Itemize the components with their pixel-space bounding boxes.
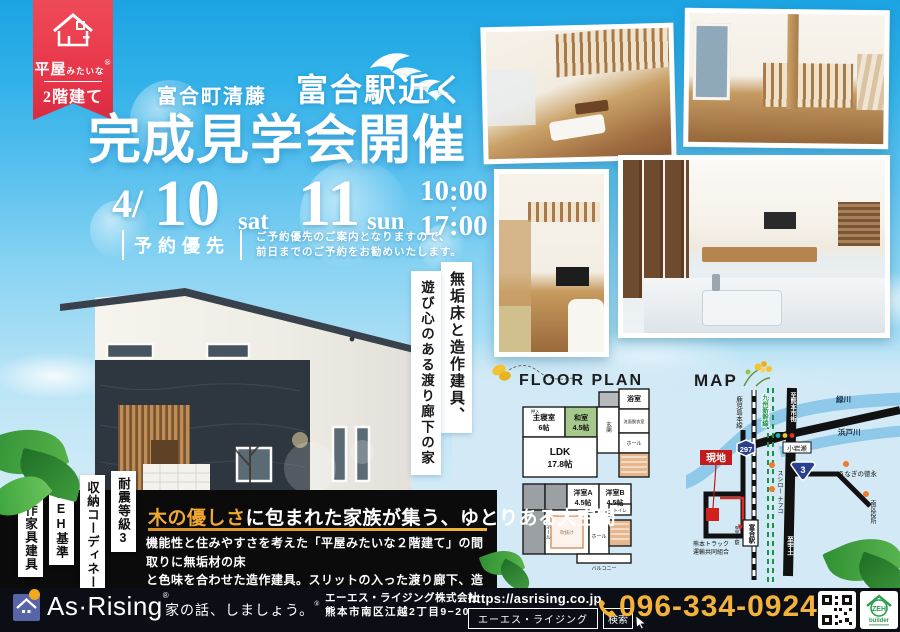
svg-text:バルコニー: バルコニー xyxy=(592,566,617,572)
logo-sun-icon xyxy=(29,589,40,600)
svg-text:南区役所: 南区役所 xyxy=(869,499,876,525)
brand-tagline: 家の話、しましょう。® xyxy=(165,600,321,620)
svg-text:ホール: ホール xyxy=(626,441,641,447)
svg-text:和室: 和室 xyxy=(573,413,588,422)
svg-text:緑川: 緑川 xyxy=(836,394,851,404)
interior-photo-loft-view xyxy=(480,23,676,165)
access-map: 現地 297 3 富合駅 緑川 浜戸川 小岩瀬 鹿児島本線 九州新幹線 至熊本市… xyxy=(686,386,900,584)
reservation-note: 予約優先 ご予約優先のご案内となりますので、 前日までのご予約をお勧めいたします… xyxy=(122,230,462,260)
footer-bar: As·Rising® 家の話、しましょう。® エーエス・ライジング株式会社 熊本… xyxy=(0,588,900,632)
interior-photo-hallway xyxy=(683,8,890,149)
ribbon-text-big: 平屋 xyxy=(34,62,66,78)
svg-text:吹抜け: 吹抜け xyxy=(560,529,574,536)
house-exterior-photo xyxy=(0,240,470,492)
feature-badge-zeh: ZEH基準 xyxy=(49,481,74,565)
clerestory-window xyxy=(107,344,153,358)
svg-text:ZEH: ZEH xyxy=(872,606,886,613)
svg-text:4.5帖: 4.5帖 xyxy=(573,423,590,432)
svg-text:鹿児島本線: 鹿児島本線 xyxy=(735,395,743,429)
feature-badge-seismic: 耐震等級3 xyxy=(111,471,136,552)
clerestory-window xyxy=(207,344,249,358)
event-title: 完成見学会開催 xyxy=(88,98,466,174)
svg-text:ナフコ: ナフコ xyxy=(776,496,783,514)
side-window xyxy=(237,448,271,481)
interior-photo-living-tatami xyxy=(494,169,609,357)
sofa xyxy=(568,299,604,352)
window xyxy=(693,23,731,100)
table xyxy=(575,100,609,116)
svg-text:現地: 現地 xyxy=(706,452,726,465)
headline-rest: に包まれた家族が集う、ゆとりある大空間 xyxy=(246,508,617,529)
wall-lamp xyxy=(350,337,355,342)
tv xyxy=(556,267,590,287)
reservation-label: 予約優先 xyxy=(122,230,242,260)
svg-text:うなぎの徳永: うなぎの徳永 xyxy=(838,469,878,478)
svg-text:小岩瀬: 小岩瀬 xyxy=(787,444,807,453)
svg-text:運輸共同組合: 運輸共同組合 xyxy=(693,548,729,556)
sink xyxy=(702,290,783,327)
ribbon-text-small: みたいな xyxy=(67,66,105,76)
dining-table xyxy=(702,247,817,263)
tatami xyxy=(499,306,531,352)
tv xyxy=(764,212,795,229)
flyer-poster: 平屋みたいな® 2階建て 富合町清藤 富合駅近く 完成見学会開催 4/ 10 s… xyxy=(0,0,900,632)
feature-badge-furniture: 造作家具建具 xyxy=(18,484,43,577)
stair-railing xyxy=(763,63,853,108)
faucet xyxy=(712,274,720,291)
site-route xyxy=(720,498,743,526)
vertical-copy-2: 遊び心のある渡り廊下の家 xyxy=(411,271,441,475)
wood-pillar xyxy=(786,14,799,110)
window-light xyxy=(486,69,535,126)
svg-text:builder: builder xyxy=(869,618,890,624)
svg-text:3: 3 xyxy=(800,465,805,475)
reservation-detail: ご予約優先のご案内となりますので、 前日までのご予約をお勧めいたします。 xyxy=(256,230,462,260)
svg-text:浜戸川: 浜戸川 xyxy=(838,427,861,437)
svg-text:ホール: ホール xyxy=(591,534,606,540)
qr-code[interactable] xyxy=(818,591,856,629)
sofa xyxy=(549,113,606,141)
loft-railing xyxy=(528,202,599,222)
svg-text:押入: 押入 xyxy=(531,408,540,415)
brand-name: As·Rising® xyxy=(47,591,169,622)
wood-screen xyxy=(838,202,880,247)
company-address: 熊本市南区江越2丁目9−20 xyxy=(325,606,479,620)
site-marker xyxy=(706,508,719,521)
svg-text:6帖: 6帖 xyxy=(539,423,550,432)
svg-text:浴室: 浴室 xyxy=(627,394,641,403)
open-time: 10:00 xyxy=(420,175,488,207)
svg-text:297: 297 xyxy=(740,445,753,454)
wood-floor xyxy=(856,54,884,111)
svg-text:玄関: 玄関 xyxy=(605,420,612,434)
wood-wall xyxy=(499,220,531,305)
slat-railing xyxy=(555,28,669,78)
svg-text:熊本トラック: 熊本トラック xyxy=(693,540,729,548)
floorplan-1f: 浴室 主寝室 6帖 和室 4.5帖 玄関 洗面脱衣室 LDK 17.8帖 ホール… xyxy=(521,387,661,481)
message-headline: 木の優しさに包まれた家族が集う、ゆとりある大空間 xyxy=(148,503,616,530)
headline-accent: 木の優しさ xyxy=(148,508,246,529)
company-info: エーエス・ライジング株式会社 熊本市南区江越2丁目9−20 xyxy=(325,592,479,619)
phone-icon xyxy=(596,597,618,621)
svg-text:スシロー: スシロー xyxy=(776,470,783,494)
svg-text:洋室B: 洋室B xyxy=(605,488,624,497)
date-month: 4/ xyxy=(112,180,143,227)
phone-number[interactable]: 096-334-0924 xyxy=(619,590,818,624)
company-name: エーエス・ライジング株式会社 xyxy=(325,592,479,606)
house-icon xyxy=(50,9,96,51)
zeh-builder-logo: ZEH builder xyxy=(860,591,898,629)
svg-text:洋室A: 洋室A xyxy=(573,488,592,497)
interior-photo-kitchen xyxy=(618,155,890,338)
svg-text:17.8帖: 17.8帖 xyxy=(547,459,573,469)
svg-text:洗面脱衣室: 洗面脱衣室 xyxy=(624,418,645,425)
svg-text:至宇土駅: 至宇土駅 xyxy=(734,526,739,547)
website-url[interactable]: https://asrising.co.jp xyxy=(468,591,602,606)
search-input[interactable]: エーエス・ライジング xyxy=(468,608,598,629)
block-wall xyxy=(143,464,210,492)
vertical-copy-1: 無垢床と造作建具、 xyxy=(441,262,472,433)
svg-text:LDK: LDK xyxy=(550,447,571,458)
headline-underline xyxy=(148,528,487,531)
